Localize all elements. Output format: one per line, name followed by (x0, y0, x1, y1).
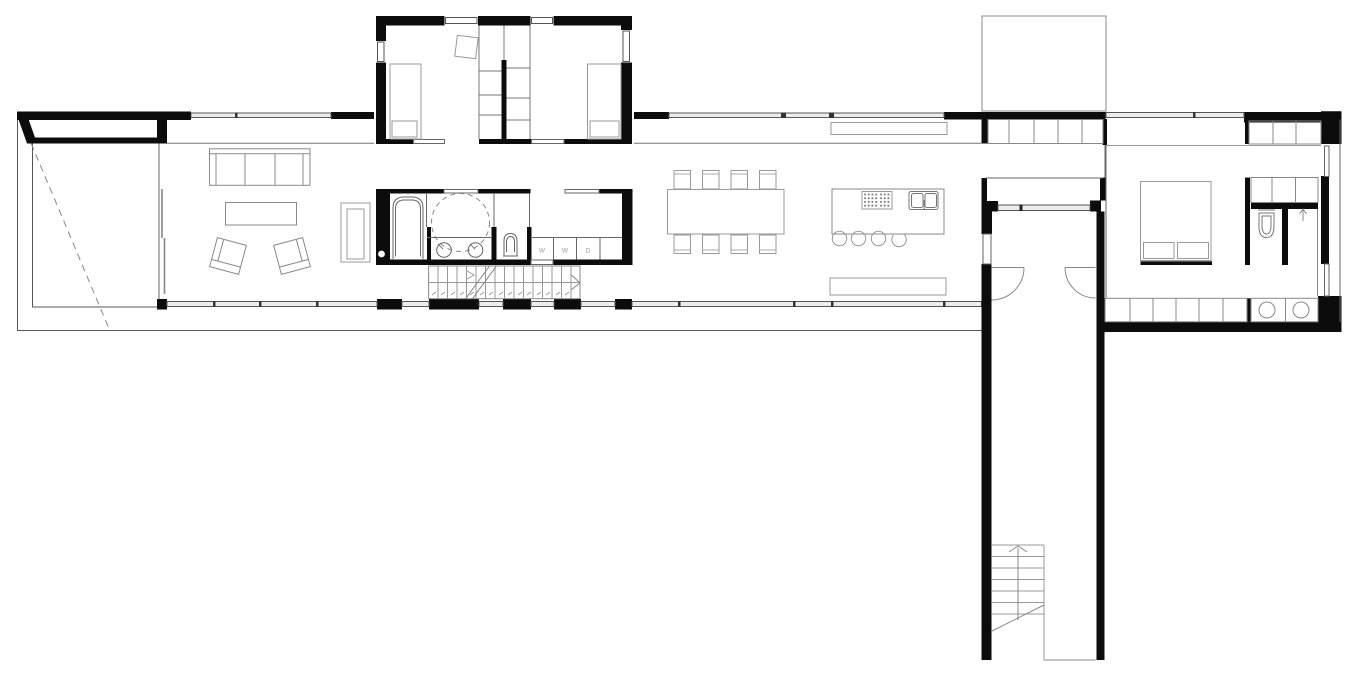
svg-text:W: W (539, 248, 546, 255)
svg-text:W: W (562, 248, 569, 255)
svg-text:D: D (586, 248, 591, 255)
